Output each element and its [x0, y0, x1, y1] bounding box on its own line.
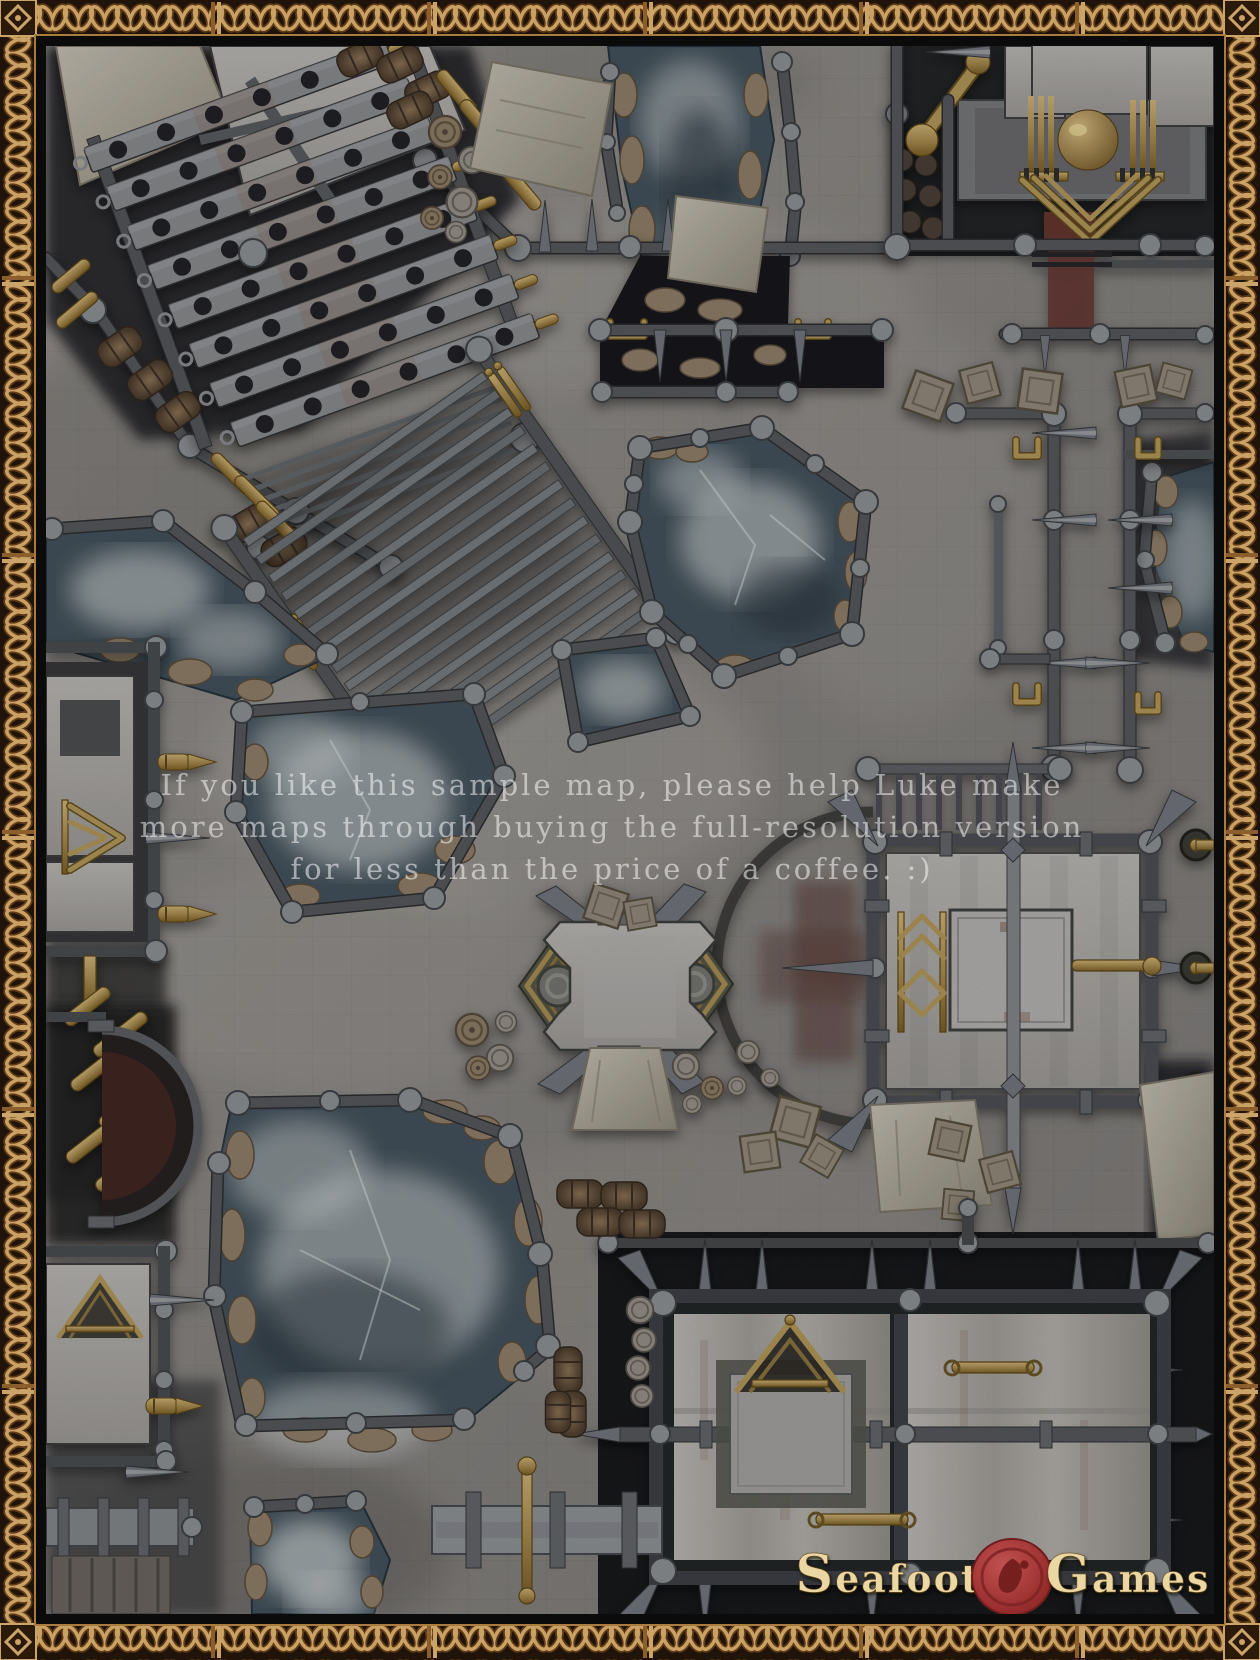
wax-seal-icon	[972, 1539, 1052, 1615]
watermark-line-2: more maps through buying the full-resolu…	[140, 810, 1085, 844]
watermark-line-3: for less than the price of a coffee. :)	[290, 852, 933, 886]
map-canvas: If you like this sample map, please help…	[0, 0, 1260, 1660]
battle-map-screenshot: If you like this sample map, please help…	[0, 0, 1260, 1660]
watermark-line-1: If you like this sample map, please help…	[161, 768, 1064, 802]
